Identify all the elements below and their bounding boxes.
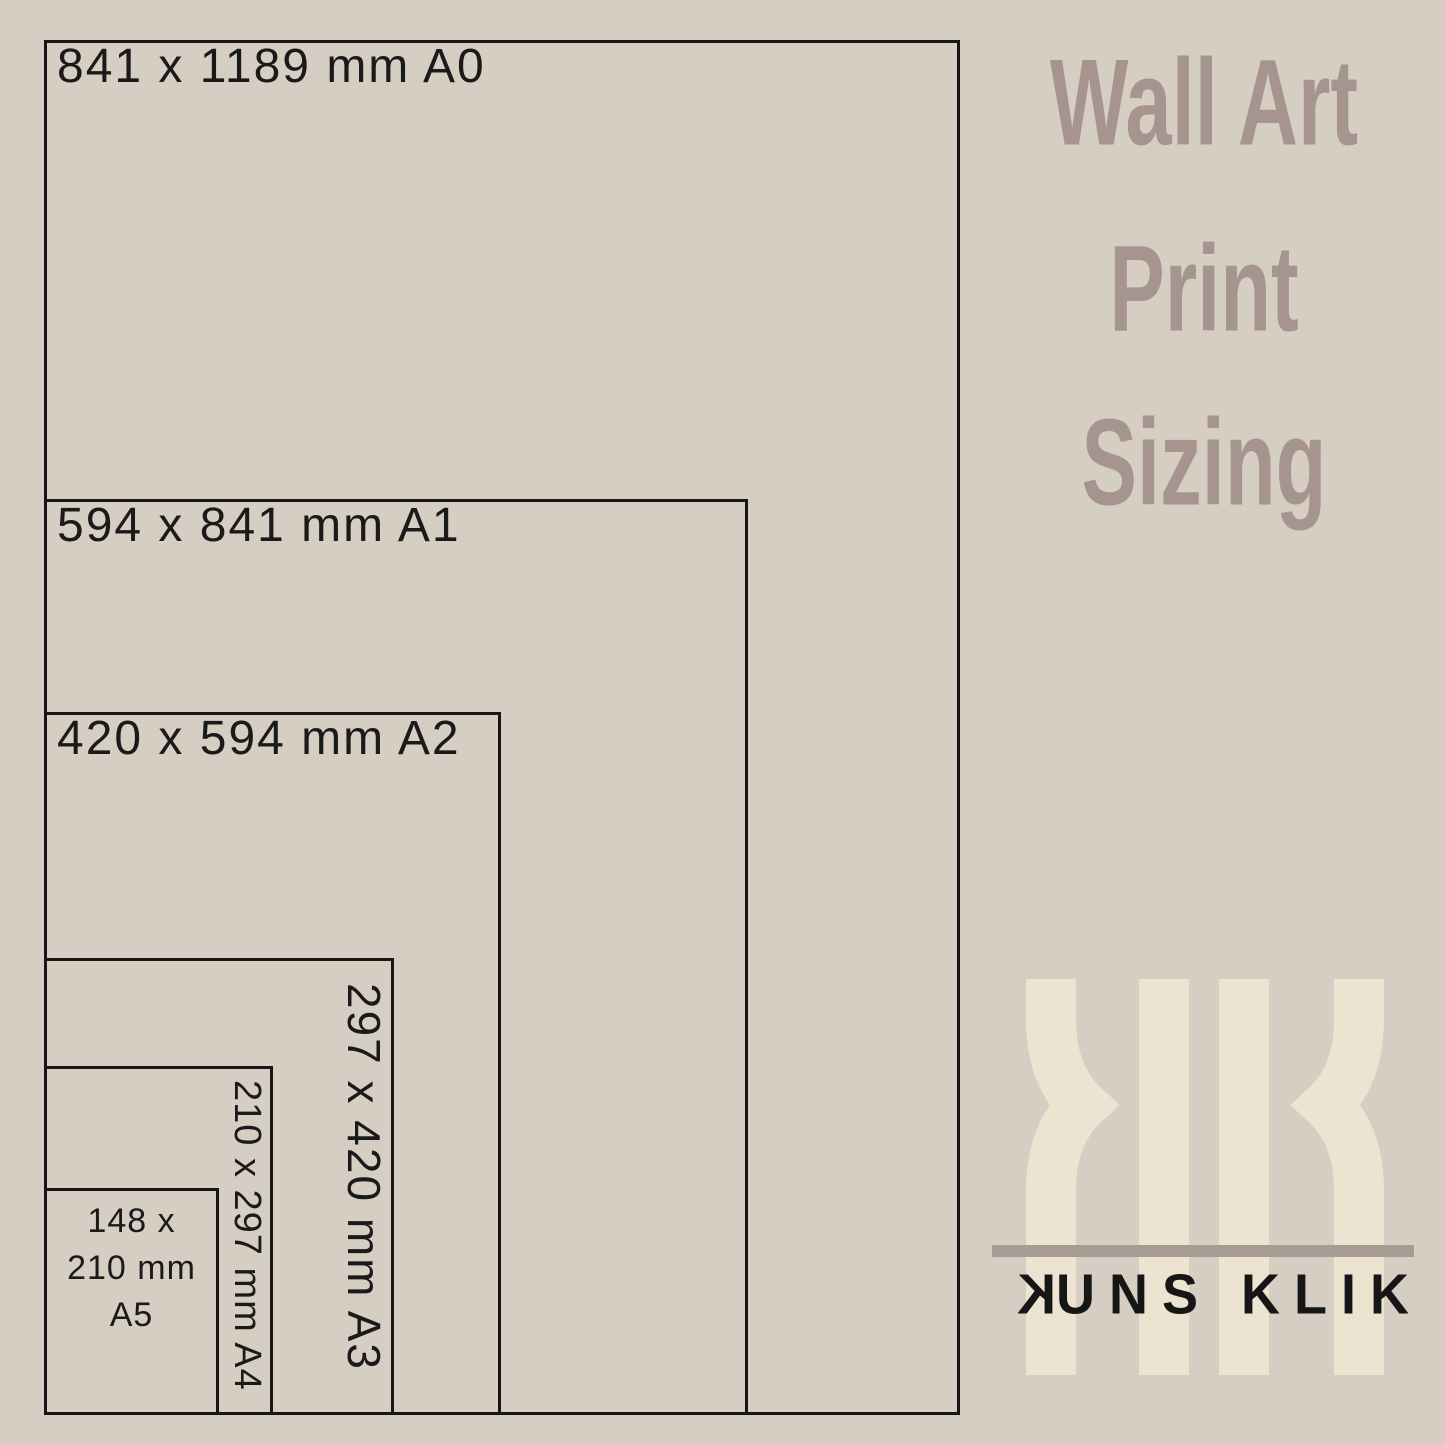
size-label-a2: 420 x 594 mm A2 bbox=[57, 710, 461, 768]
size-label-a0: 841 x 1189 mm A0 bbox=[57, 38, 486, 96]
logo-divider-line bbox=[992, 1245, 1414, 1257]
wordmark-klik: KLIK bbox=[1241, 1262, 1423, 1327]
wordmark-mirrored-k: K bbox=[1003, 1262, 1056, 1327]
size-label-a1: 594 x 841 mm A1 bbox=[57, 497, 461, 555]
size-label-a4: 210 x 297 mm A4 bbox=[223, 1080, 269, 1391]
page-title-line-1: Wall Art bbox=[1009, 36, 1399, 171]
wall-art-print-sizing-infographic: 841 x 1189 mm A0 594 x 841 mm A1 420 x 5… bbox=[0, 0, 1445, 1445]
wordmark-kuns: KUNS bbox=[1003, 1262, 1212, 1327]
logo-wordmark: KUNS KLIK bbox=[1003, 1262, 1409, 1327]
size-label-a5: 148 x 210 mm A5 bbox=[46, 1198, 217, 1339]
size-label-a5-line3: A5 bbox=[46, 1292, 217, 1339]
page-title-line-2: Print bbox=[1009, 222, 1399, 357]
size-label-a5-line2: 210 mm bbox=[46, 1245, 217, 1292]
size-label-a5-line1: 148 x bbox=[46, 1198, 217, 1245]
size-label-a3: 297 x 420 mm A3 bbox=[336, 983, 391, 1371]
wordmark-kuns-rest: UNS bbox=[1056, 1263, 1212, 1326]
page-title-line-3: Sizing bbox=[1009, 396, 1399, 531]
